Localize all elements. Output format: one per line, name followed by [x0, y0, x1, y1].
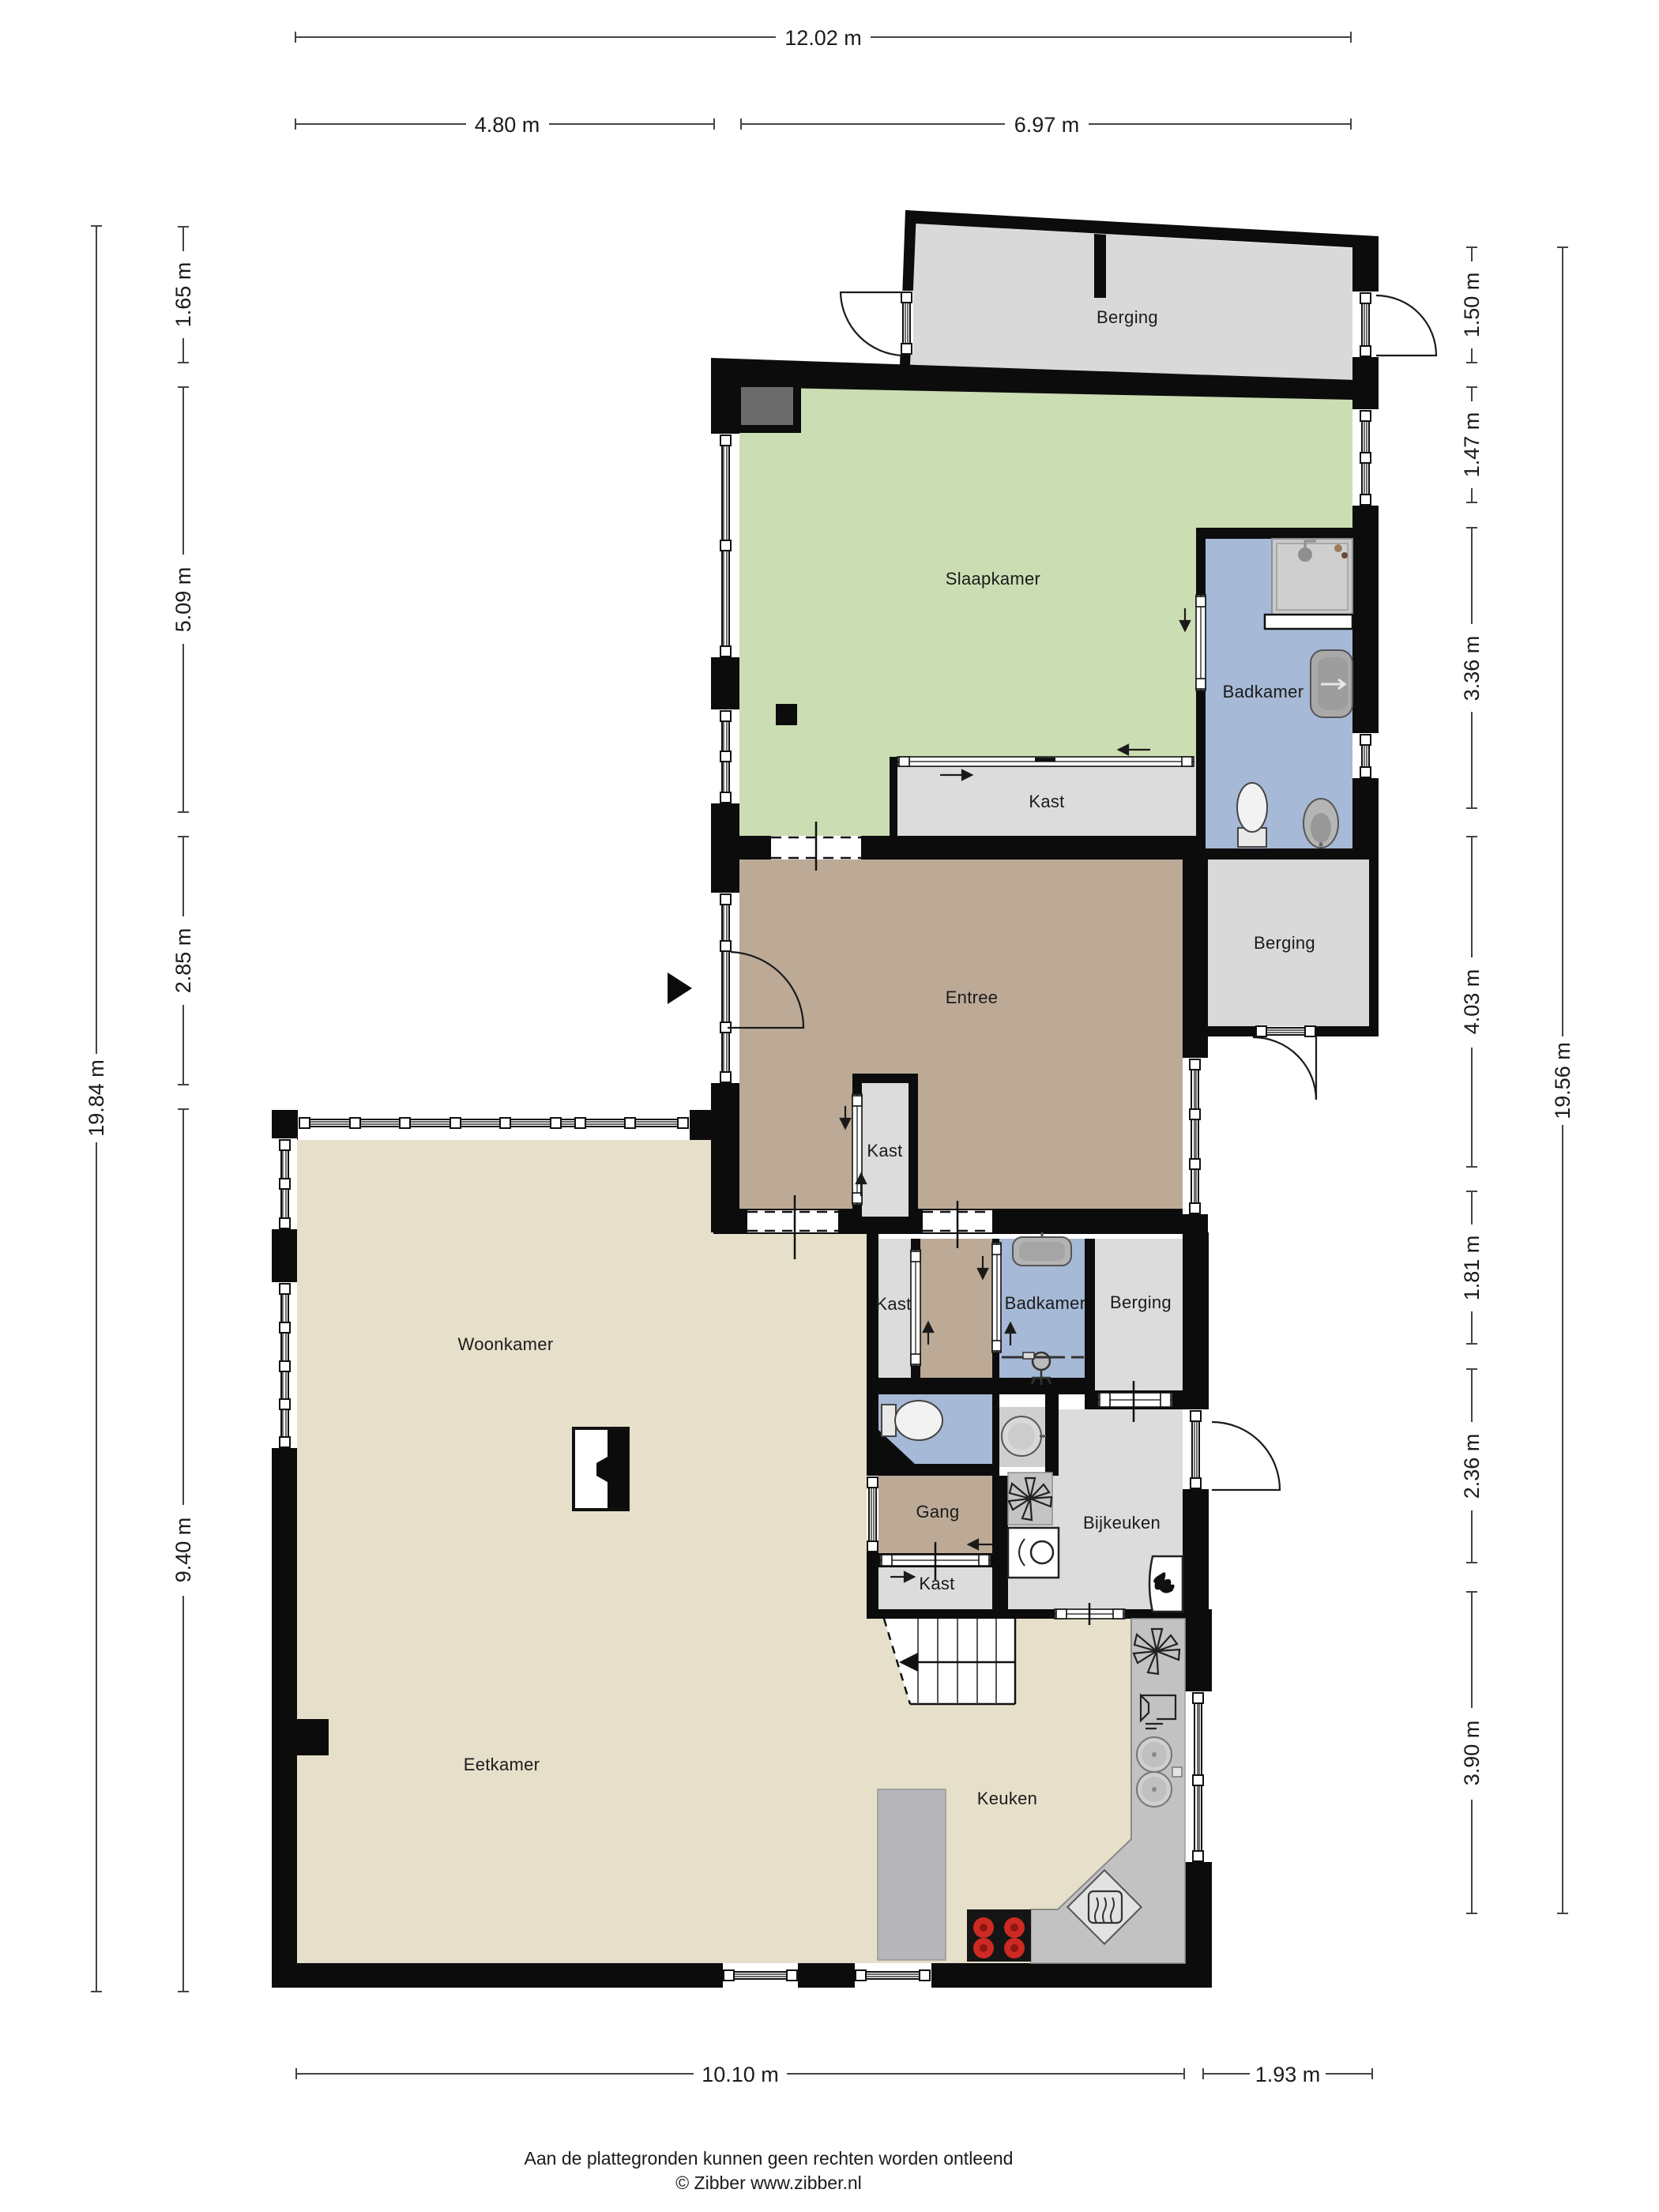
svg-text:Badkamer: Badkamer: [1005, 1293, 1086, 1313]
svg-text:3.36 m: 3.36 m: [1460, 636, 1484, 702]
svg-text:4.03 m: 4.03 m: [1460, 969, 1484, 1035]
svg-text:2.85 m: 2.85 m: [171, 928, 195, 994]
svg-text:Kast: Kast: [875, 1294, 911, 1314]
svg-text:1.65 m: 1.65 m: [171, 262, 195, 328]
svg-text:Kast: Kast: [919, 1574, 954, 1593]
svg-text:1.93 m: 1.93 m: [1255, 2063, 1321, 2086]
svg-text:12.02 m: 12.02 m: [784, 26, 862, 50]
svg-text:4.80 m: 4.80 m: [475, 113, 540, 137]
svg-text:10.10 m: 10.10 m: [702, 2063, 779, 2086]
svg-text:© Zibber www.zibber.nl: © Zibber www.zibber.nl: [675, 2172, 862, 2193]
svg-text:1.50 m: 1.50 m: [1460, 273, 1484, 338]
svg-text:19.84 m: 19.84 m: [85, 1059, 108, 1137]
svg-text:Slaapkamer: Slaapkamer: [946, 569, 1040, 589]
svg-text:Keuken: Keuken: [977, 1789, 1037, 1808]
svg-text:Berging: Berging: [1097, 307, 1158, 327]
svg-text:Entree: Entree: [946, 987, 999, 1007]
svg-text:Gang: Gang: [916, 1502, 959, 1522]
svg-text:2.36 m: 2.36 m: [1460, 1434, 1484, 1499]
svg-text:19.56 m: 19.56 m: [1551, 1042, 1574, 1119]
svg-text:Bijkeuken: Bijkeuken: [1083, 1513, 1161, 1533]
svg-text:1.81 m: 1.81 m: [1460, 1236, 1484, 1301]
svg-text:Woonkamer: Woonkamer: [458, 1334, 554, 1354]
svg-text:Berging: Berging: [1110, 1292, 1172, 1312]
svg-text:Badkamer: Badkamer: [1223, 682, 1304, 702]
svg-text:Kast: Kast: [867, 1141, 902, 1161]
svg-text:Eetkamer: Eetkamer: [464, 1755, 540, 1774]
svg-text:9.40 m: 9.40 m: [171, 1518, 195, 1583]
svg-text:3.90 m: 3.90 m: [1460, 1721, 1484, 1786]
svg-text:Kast: Kast: [1029, 792, 1064, 811]
svg-text:Aan de plattegronden kunnen ge: Aan de plattegronden kunnen geen rechten…: [525, 2148, 1014, 2169]
svg-text:5.09 m: 5.09 m: [171, 567, 195, 633]
svg-text:1.47 m: 1.47 m: [1460, 412, 1484, 478]
svg-text:Berging: Berging: [1254, 933, 1315, 953]
svg-text:6.97 m: 6.97 m: [1014, 113, 1080, 137]
